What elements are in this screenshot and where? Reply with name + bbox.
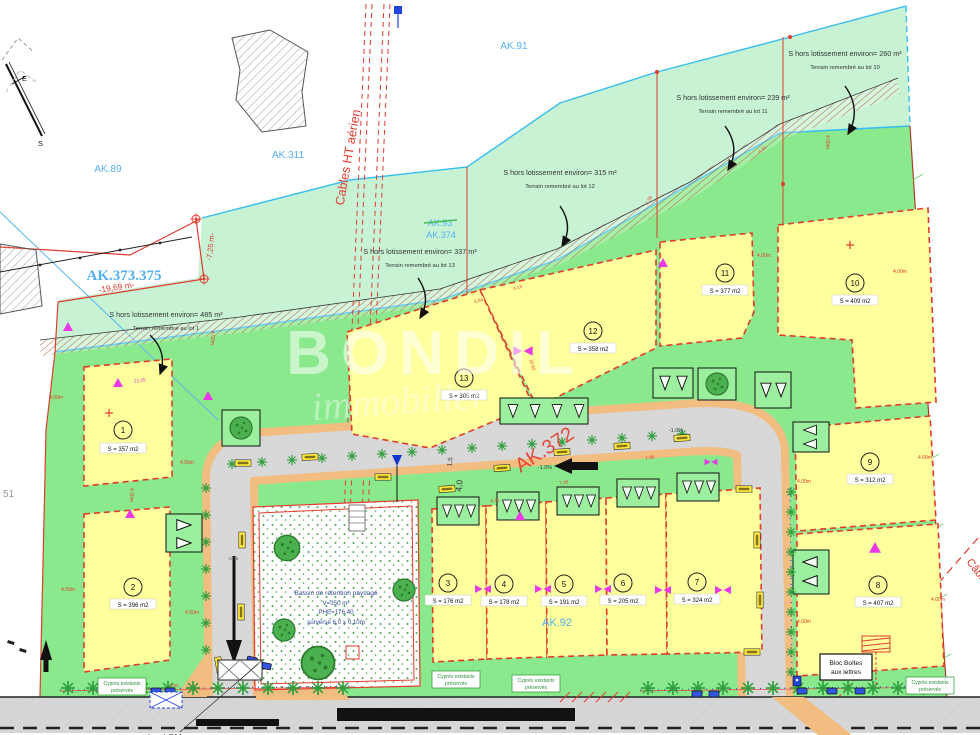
lot-area: S = 377 m2 (710, 289, 742, 295)
cypress-label: préservés (445, 681, 467, 687)
blue-flag-top (394, 6, 402, 28)
dim-4m: 4.00m (128, 488, 134, 502)
hors-lot-note: Terrain remembré au lot 13 (385, 263, 455, 269)
lot-2-parcel (84, 507, 170, 672)
parcel-label-51: 51 (3, 489, 15, 500)
plan-canvas: 1 2 3 4 5 6 7 8 9 10 11 12 13 S = 357 m2… (0, 0, 980, 735)
speed-table-small (196, 719, 279, 726)
cypress-label: Cyprès existants (438, 674, 475, 680)
mailbox-icon (793, 676, 801, 686)
basin-volume: V=350 m³ (323, 600, 350, 607)
lot-area: S = 205 m2 (608, 599, 640, 605)
lot-number: 3 (446, 579, 451, 588)
tree-icon (273, 619, 295, 641)
tree-icon-entrance (302, 647, 335, 680)
lot-4-parcel (486, 502, 547, 659)
lot-area: S = 176 m2 (433, 599, 465, 605)
lot-number: 12 (589, 327, 598, 336)
compass-south-label: S (38, 139, 43, 148)
existing-building-left (0, 244, 42, 314)
dim-4m: 4.00m (893, 269, 907, 275)
boundary-ticks-left (7, 640, 27, 653)
cypress-label: Cyprès existants (912, 680, 949, 686)
dim-4m: 4.00m (797, 619, 811, 625)
mailbox-label: Bloc Boîtes aux lettres (820, 654, 872, 680)
dim-4m: 4.00m (797, 479, 811, 485)
dim-sidewalk: 1,5 (447, 457, 455, 467)
lot-area: S = 324 m2 (682, 598, 714, 604)
lot-number: 10 (851, 279, 860, 288)
cypress-label: préservés (919, 687, 941, 693)
lot-number: 11 (721, 269, 730, 278)
cables-right-label: Câbles (964, 556, 980, 591)
existing-building-top (232, 30, 308, 132)
dim-4m: 4.00m (61, 587, 75, 593)
hors-lot-note: Terrain remembré au lot 1 (133, 326, 199, 332)
dim-4m: 4.00m (49, 395, 63, 401)
edge-measure: -2.05 (228, 556, 239, 561)
lot-3-parcel (432, 506, 487, 662)
cypress-label: Cyprès existants (104, 681, 141, 687)
lot-area: S = 357 m2 (108, 447, 140, 453)
compass-east-label: E (22, 74, 27, 83)
mailbox-label-line: Bloc Boîtes (830, 660, 864, 667)
parcel-label-ak89: AK.89 (94, 164, 122, 175)
lot-area: S = 409 m2 (840, 299, 872, 305)
hors-lot-surface: S hors lotissement environ= 315 m² (503, 168, 617, 177)
lot-number: 4 (502, 580, 507, 589)
section-line-es (2, 38, 45, 136)
cypress-label: préservés (525, 685, 547, 691)
basin-outlet-structure (349, 505, 365, 531)
dim-4m: 4.00m (180, 460, 194, 466)
speed-table (337, 708, 575, 721)
lot-area: S = 191 m2 (549, 600, 581, 606)
basin-overflow: surverse 6,0 x 0,10m (307, 619, 365, 626)
lot-6-parcel (606, 494, 667, 655)
dim-4m: 4.00m (931, 597, 945, 603)
dim-4m: 4.00m (757, 253, 771, 259)
lot-number: 5 (562, 580, 567, 589)
lot-area: S = 396 m2 (118, 603, 150, 609)
dim-roadway: 4,0 (453, 479, 464, 492)
hors-lot-note: Terrain remembré au lot 11 (698, 109, 767, 115)
dim-4m: 4.00m (918, 455, 932, 461)
lot-number: 6 (621, 579, 626, 588)
cypress-label: préservés (111, 688, 133, 694)
edge-measure: 4.93 (170, 683, 179, 688)
hors-lot-note: Terrain remembré au lot 12 (525, 184, 595, 190)
parcel-label-ak92: AK.92 (542, 617, 572, 629)
slope-label: -1.0% (669, 428, 683, 434)
subdivision-plan: 1 2 3 4 5 6 7 8 9 10 11 12 13 S = 357 m2… (0, 0, 980, 735)
basin-title: Bassin de rétention paysagé (294, 590, 378, 597)
lot-5-parcel (546, 498, 607, 657)
parcel-label-ak91: AK.91 (500, 41, 528, 52)
basin-phe: PHE=176.40 (318, 609, 354, 616)
lot-number: 2 (131, 583, 136, 592)
lot-7-parcel (666, 488, 762, 654)
lot-area: S = 312 m2 (855, 478, 887, 484)
tree-icon (393, 579, 415, 601)
slope-label: -1.0% (538, 465, 552, 471)
mailbox-label-line: aux lettres (831, 669, 862, 676)
dim-4m: 4.00m (185, 610, 199, 616)
cypress-label: Cyprès existants (518, 678, 555, 684)
lot-number: 1 (121, 426, 126, 435)
lot-number: 9 (868, 458, 873, 467)
lot-area: S = 407 m2 (863, 601, 895, 607)
hors-lot-note: Terrain remembré au lot 10 (810, 65, 880, 71)
tree-icon (274, 535, 299, 560)
dim-4m: 4.00m (824, 135, 830, 149)
parcel-label-ak311: AK.311 (272, 150, 304, 161)
hors-lot-surface: S hors lotissement environ= 337 m² (363, 247, 477, 256)
lot-number: 7 (695, 578, 700, 587)
lot-number: 8 (876, 581, 881, 590)
hors-lot-surface: S hors lotissement environ= 239 m² (676, 93, 790, 102)
parcel-label-ak374: AK.374 (426, 230, 456, 240)
dim-4m: 4.00m (209, 331, 215, 345)
hors-lot-surface: S hors lotissement environ= 485 m² (109, 310, 223, 319)
lot-area: S = 178 m2 (489, 600, 521, 606)
hors-lot-surface: S hors lotissement environ= 260 m² (788, 49, 902, 58)
